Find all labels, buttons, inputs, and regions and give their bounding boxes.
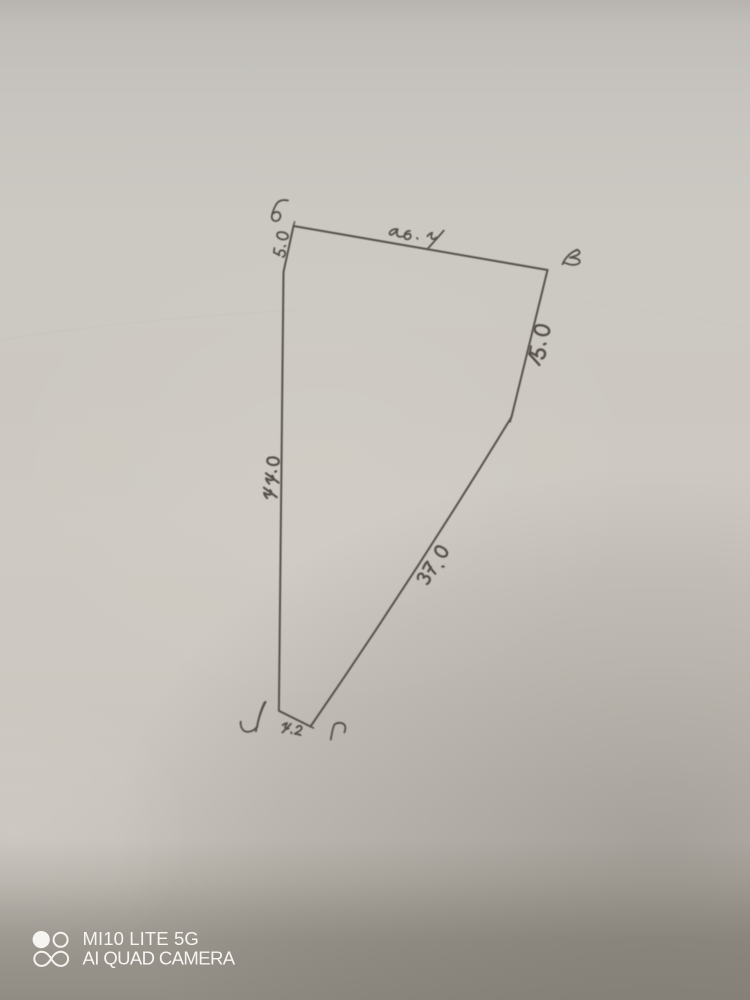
svg-text:AI QUAD CAMERA: AI QUAD CAMERA xyxy=(83,948,236,969)
svg-text:MI10 LITE 5G: MI10 LITE 5G xyxy=(83,928,199,949)
